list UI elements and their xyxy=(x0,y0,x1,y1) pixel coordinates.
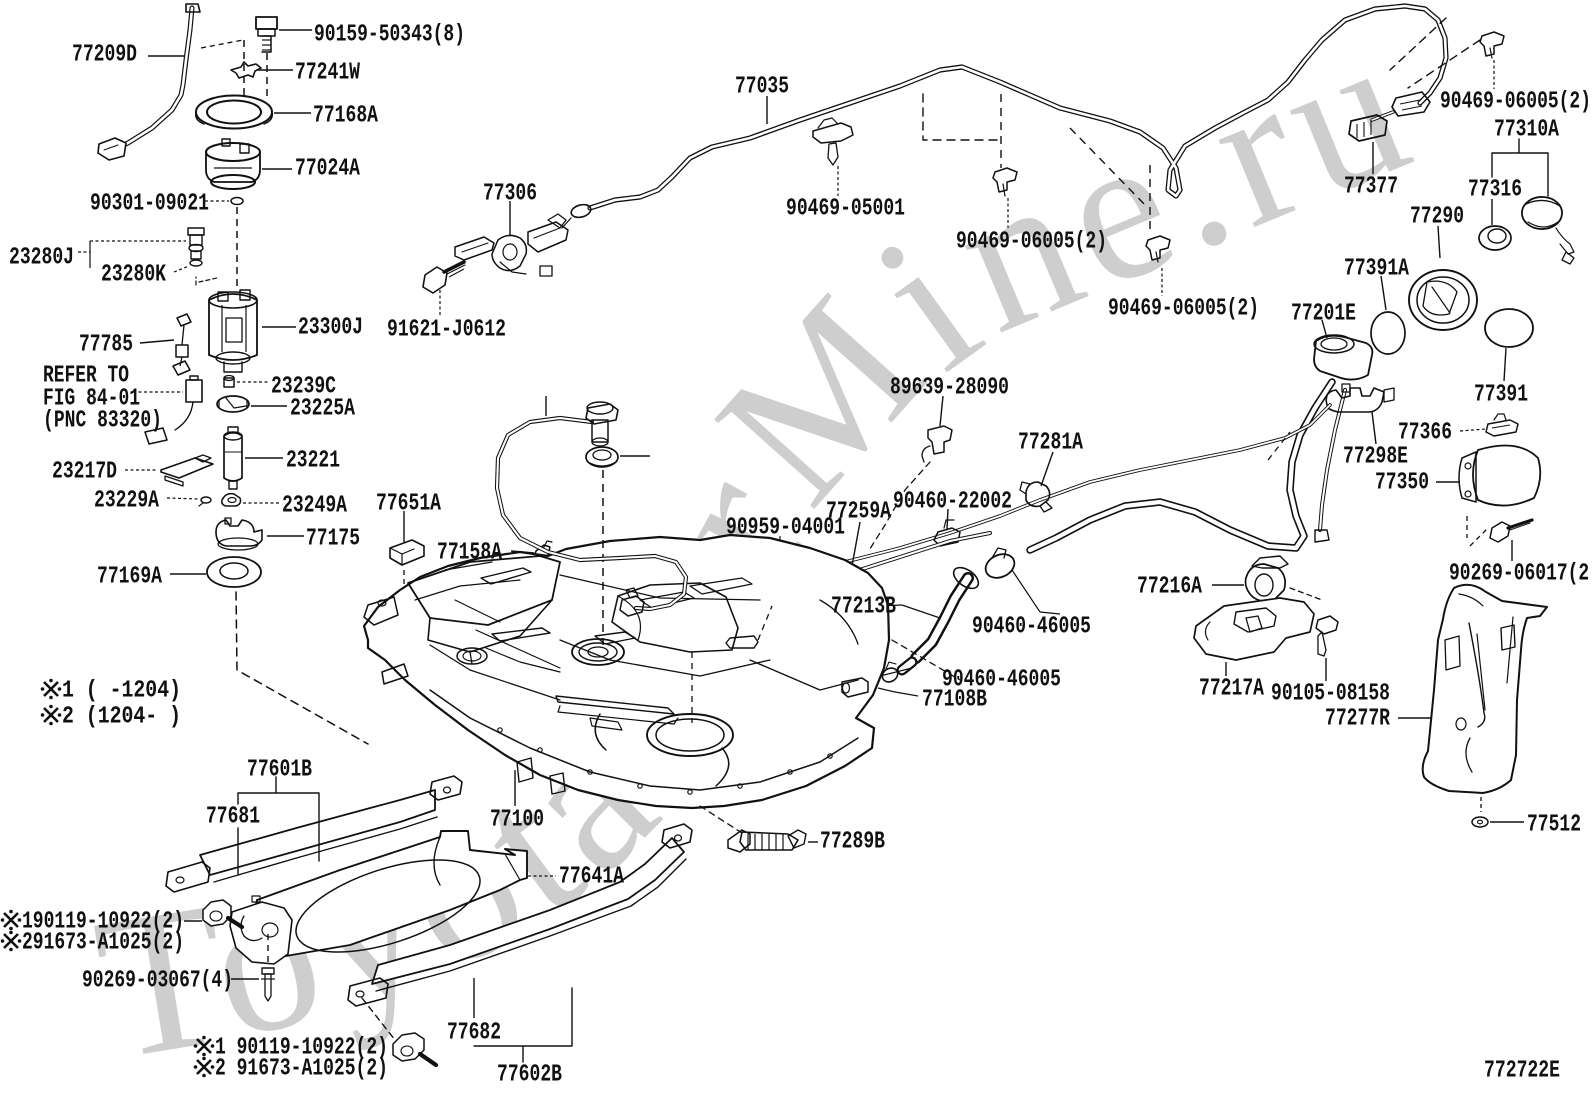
svg-text:77391: 77391 xyxy=(1474,382,1528,409)
svg-text:77201E: 77201E xyxy=(1291,301,1356,328)
svg-text:23221: 23221 xyxy=(286,448,340,475)
svg-text:23225A: 23225A xyxy=(290,396,355,423)
svg-text:77217A: 77217A xyxy=(1199,676,1264,703)
svg-text:77024A: 77024A xyxy=(295,156,360,183)
svg-text:77108B: 77108B xyxy=(922,687,987,714)
svg-text:(PNC 83320): (PNC 83320) xyxy=(43,408,162,435)
svg-text:77682: 77682 xyxy=(447,1020,501,1047)
svg-text:77158A: 77158A xyxy=(437,540,502,567)
svg-text:77289B: 77289B xyxy=(820,829,885,856)
svg-text:90469-06005(2): 90469-06005(2) xyxy=(1108,296,1259,323)
svg-text:77602B: 77602B xyxy=(497,1062,562,1089)
svg-text:90301-09021: 90301-09021 xyxy=(90,191,209,218)
svg-text:2 91673-A1025(2): 2 91673-A1025(2) xyxy=(215,1056,388,1083)
svg-text:77681: 77681 xyxy=(206,804,260,831)
svg-text:77391A: 77391A xyxy=(1344,256,1409,283)
svg-text:77216A: 77216A xyxy=(1137,574,1202,601)
svg-text:90460-22002: 90460-22002 xyxy=(893,489,1012,516)
svg-text:77310A: 77310A xyxy=(1494,117,1559,144)
svg-text:89639-28090: 89639-28090 xyxy=(890,375,1009,402)
svg-text:77512: 77512 xyxy=(1527,812,1581,839)
svg-text:77290: 77290 xyxy=(1410,204,1464,231)
svg-text:77366: 77366 xyxy=(1398,420,1452,447)
svg-text:23249A: 23249A xyxy=(282,493,347,520)
svg-text:77298E: 77298E xyxy=(1343,444,1408,471)
svg-text:77785: 77785 xyxy=(79,332,133,359)
svg-text:23300J: 23300J xyxy=(298,315,363,342)
svg-text:77306: 77306 xyxy=(483,181,537,208)
svg-text:291673-A1025(2): 291673-A1025(2) xyxy=(22,930,184,957)
svg-text:77651A: 77651A xyxy=(376,491,441,518)
svg-text:77209D: 77209D xyxy=(72,42,137,69)
svg-text:77035: 77035 xyxy=(735,74,789,101)
svg-text:90105-08158: 90105-08158 xyxy=(1271,681,1390,708)
svg-text:77316: 77316 xyxy=(1468,177,1522,204)
svg-text:77281A: 77281A xyxy=(1018,430,1083,457)
svg-text:90460-46005: 90460-46005 xyxy=(972,614,1091,641)
svg-text:23217D: 23217D xyxy=(52,459,117,486)
svg-text:77350: 77350 xyxy=(1375,470,1429,497)
svg-text:91621-J0612: 91621-J0612 xyxy=(387,317,506,344)
svg-text:90959-04001: 90959-04001 xyxy=(726,515,845,542)
svg-text:77213B: 77213B xyxy=(831,594,896,621)
svg-text:90159-50343(8): 90159-50343(8) xyxy=(314,22,465,49)
svg-text:90469-05001: 90469-05001 xyxy=(786,196,905,223)
svg-text:77100: 77100 xyxy=(490,807,544,834)
svg-text:90269-03067(4): 90269-03067(4) xyxy=(82,968,233,995)
svg-text:77241W: 77241W xyxy=(295,60,360,87)
svg-text:23280K: 23280K xyxy=(101,262,166,289)
svg-text:77169A: 77169A xyxy=(97,564,162,591)
svg-text:90469-06005(2): 90469-06005(2) xyxy=(1440,89,1591,116)
svg-text:90269-06017(2): 90269-06017(2) xyxy=(1449,561,1592,588)
svg-text:77377: 77377 xyxy=(1344,174,1398,201)
svg-text:77168A: 77168A xyxy=(313,103,378,130)
svg-text:90469-06005(2): 90469-06005(2) xyxy=(956,229,1107,256)
svg-text:77641A: 77641A xyxy=(559,864,624,891)
svg-text:2 (1204- ): 2 (1204- ) xyxy=(62,704,181,731)
svg-text:77175: 77175 xyxy=(306,526,360,553)
svg-text:23280J: 23280J xyxy=(9,245,74,272)
svg-text:1 ( -1204): 1 ( -1204) xyxy=(62,678,181,705)
svg-text:23229A: 23229A xyxy=(94,488,159,515)
svg-text:77277R: 77277R xyxy=(1325,706,1390,733)
svg-text:772722E: 772722E xyxy=(1484,1058,1560,1085)
svg-text:77601B: 77601B xyxy=(247,757,312,784)
